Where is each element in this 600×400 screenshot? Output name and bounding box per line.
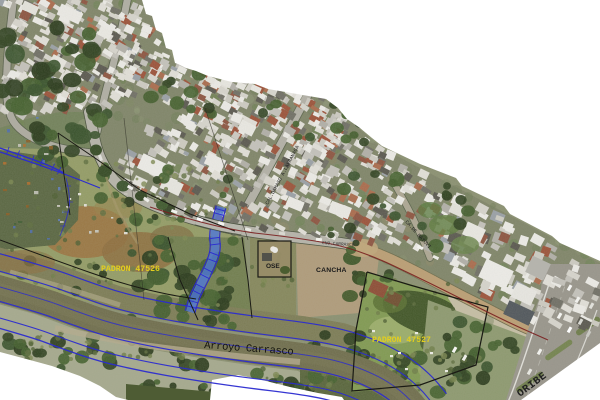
- svg-text:PADRON 47527: PADRON 47527: [372, 336, 431, 345]
- svg-text:PADRON 47526: PADRON 47526: [101, 265, 160, 274]
- svg-text:OSE: OSE: [266, 263, 280, 270]
- svg-text:CANCHA: CANCHA: [316, 267, 347, 274]
